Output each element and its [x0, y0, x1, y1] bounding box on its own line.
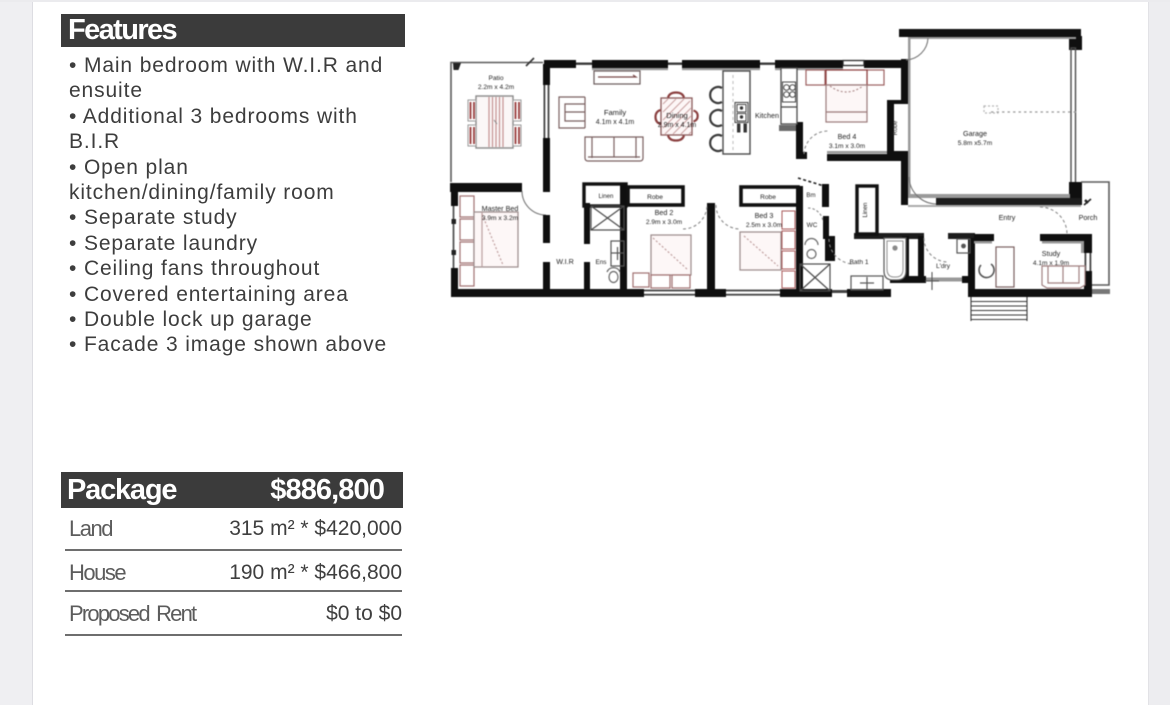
svg-text:Master Bed: Master Bed [482, 204, 519, 213]
svg-text:5.8m x5.7m: 5.8m x5.7m [958, 140, 993, 147]
svg-text:Bed 2: Bed 2 [655, 208, 674, 217]
svg-text:Dining: Dining [666, 111, 688, 120]
svg-text:Ens: Ens [595, 259, 606, 266]
svg-text:Bed 4: Bed 4 [838, 132, 857, 141]
svg-text:Family: Family [604, 108, 627, 117]
svg-text:Robe: Robe [647, 194, 663, 201]
svg-text:Entry: Entry [999, 213, 1016, 222]
svg-text:Patio: Patio [488, 75, 503, 82]
svg-text:WC: WC [807, 222, 818, 229]
svg-text:2.9m x 4.1m: 2.9m x 4.1m [658, 122, 697, 129]
svg-text:3.9m x 3.2m: 3.9m x 3.2m [482, 215, 519, 222]
svg-text:Kitchen: Kitchen [755, 111, 779, 120]
svg-text:Garage: Garage [963, 129, 987, 138]
svg-text:W.I.R: W.I.R [556, 257, 574, 266]
svg-text:2.2m x 4.2m: 2.2m x 4.2m [478, 84, 515, 91]
svg-text:3.1m x 3.0m: 3.1m x 3.0m [829, 143, 866, 150]
svg-text:2.5m x 3.0m: 2.5m x 3.0m [746, 222, 783, 229]
svg-text:Linen: Linen [599, 193, 614, 200]
svg-text:Robe: Robe [760, 194, 776, 201]
svg-text:Robe: Robe [892, 120, 899, 135]
svg-text:L'dry: L'dry [936, 263, 951, 270]
svg-text:Bath 1: Bath 1 [849, 259, 868, 266]
svg-text:Linen: Linen [862, 203, 869, 218]
svg-text:4.1m x 4.1m: 4.1m x 4.1m [596, 119, 635, 126]
svg-text:Porch: Porch [1079, 213, 1098, 222]
svg-text:2.9m x 3.0m: 2.9m x 3.0m [646, 219, 683, 226]
svg-text:Study: Study [1042, 249, 1061, 258]
svg-text:4.1m x 1.9m: 4.1m x 1.9m [1033, 260, 1070, 267]
svg-text:Bed 3: Bed 3 [755, 211, 774, 220]
svg-text:Bm: Bm [806, 192, 815, 199]
